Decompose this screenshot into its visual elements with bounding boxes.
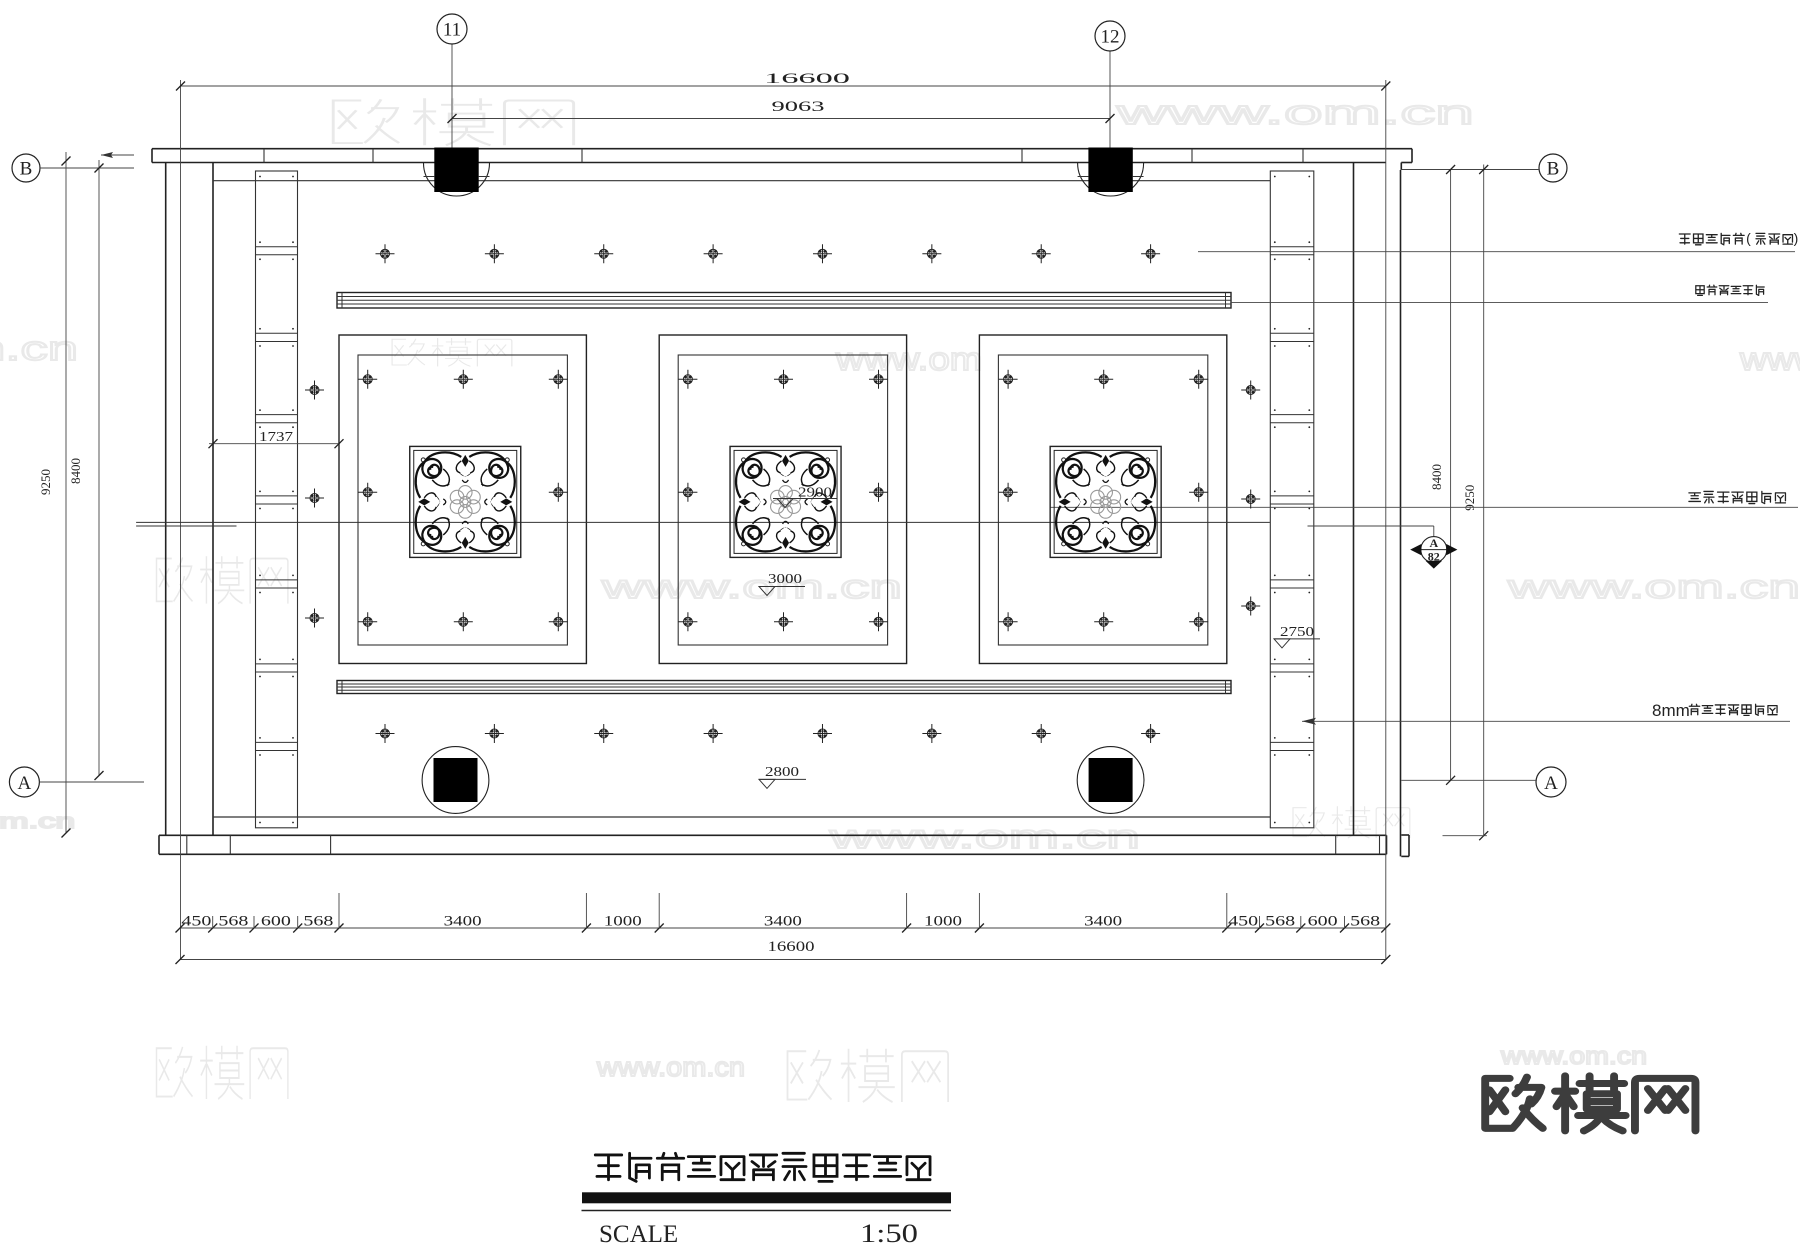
svg-text:A: A [18,773,32,794]
svg-text:www.o: www.o [1739,341,1800,377]
svg-text:568: 568 [303,914,333,930]
svg-text:SCALE: SCALE [599,1221,678,1248]
svg-text:8400: 8400 [68,458,83,484]
svg-text:16600: 16600 [768,939,815,955]
svg-text:): ) [1794,230,1799,246]
svg-text:3000: 3000 [768,572,802,587]
svg-text:600: 600 [261,914,291,930]
svg-text:600: 600 [1308,914,1338,930]
svg-text:9250: 9250 [38,469,53,495]
svg-text:3400: 3400 [764,914,802,930]
svg-text:1000: 1000 [604,914,642,930]
svg-text:www.om.cn: www.om.cn [828,818,1140,855]
svg-text:9063: 9063 [772,99,825,115]
svg-text:450: 450 [181,914,211,930]
svg-text:www.om: www.om [835,341,982,377]
svg-text:B: B [1547,159,1560,180]
svg-text:12: 12 [1101,27,1120,48]
svg-text:B: B [20,159,33,180]
svg-text:1:50: 1:50 [860,1219,918,1248]
svg-text:(: ( [1746,230,1751,246]
svg-text:1737: 1737 [259,430,293,445]
svg-text:www.om.cn: www.om.cn [596,1052,745,1082]
svg-text:3400: 3400 [1084,914,1122,930]
svg-text:8400: 8400 [1429,464,1444,490]
svg-text:om.cn: om.cn [0,811,75,833]
svg-text:www.om.cn: www.om.cn [1115,94,1474,132]
svg-text:2750: 2750 [1280,625,1314,640]
svg-text:568: 568 [1265,914,1295,930]
svg-text:568: 568 [218,914,248,930]
svg-text:2800: 2800 [765,765,799,780]
svg-text:A: A [1429,536,1438,550]
svg-text:3400: 3400 [444,914,482,930]
svg-text:www.om.cn: www.om.cn [1506,568,1800,605]
svg-text:1000: 1000 [924,914,962,930]
svg-text:11: 11 [443,20,461,41]
svg-text:A: A [1544,773,1558,794]
svg-text:568: 568 [1350,914,1380,930]
svg-text:450: 450 [1228,914,1258,930]
svg-text:8mm: 8mm [1652,701,1690,720]
svg-text:16600: 16600 [764,71,850,87]
svg-text:www.om.cn: www.om.cn [600,568,902,605]
svg-text:www.om.cn: www.om.cn [1500,1043,1647,1070]
